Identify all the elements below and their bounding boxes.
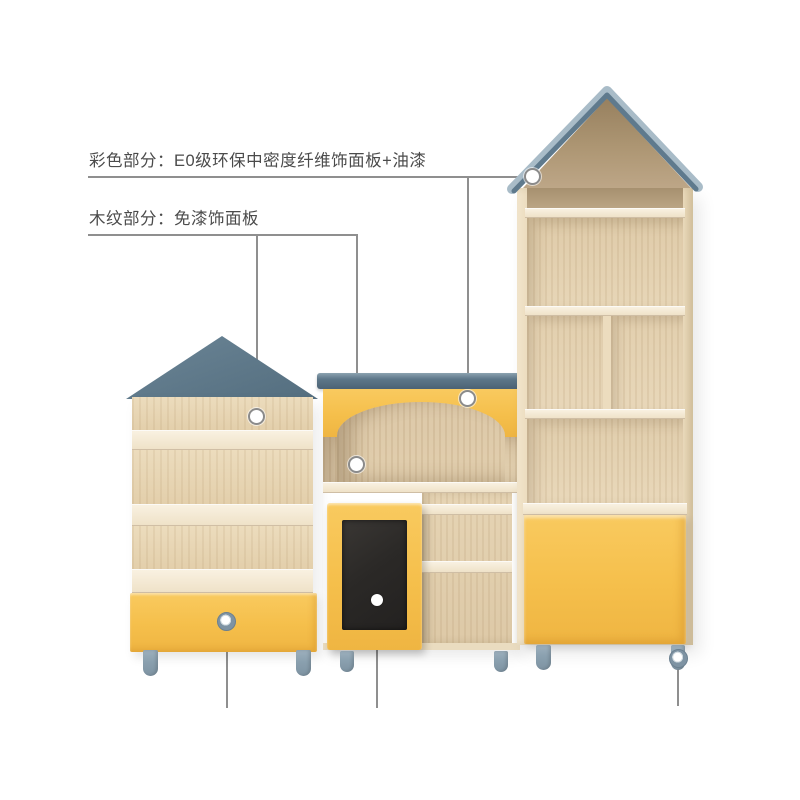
right-unit-compartment-bottom (527, 419, 683, 503)
callout-marker-wood-panel (248, 408, 265, 425)
right-unit-shelf-top (525, 208, 685, 218)
middle-unit-right-shelf-2 (422, 561, 512, 573)
callout-marker-roof-trim (524, 168, 541, 185)
middle-unit-roof-strip (317, 373, 528, 389)
left-unit-leg-left (143, 650, 158, 676)
left-unit-roof (126, 336, 318, 399)
right-unit-leg-left (536, 645, 551, 670)
chalkboard-door (327, 503, 422, 650)
middle-unit-arch-panel (337, 402, 505, 483)
callout-marker-yellow-facade (459, 390, 476, 407)
middle-unit-shelf-board (323, 482, 520, 493)
furniture-material-diagram: 彩色部分：E0级环保中密度纤维饰面板+油漆 木纹部分：免漆饰面板 (0, 0, 800, 800)
drawer-knob-marker (217, 612, 236, 631)
callout-marker-arch-panel (348, 456, 365, 473)
right-leg-marker (669, 649, 688, 668)
middle-unit-leg-right (494, 651, 508, 672)
right-unit-compartment-large (527, 218, 683, 307)
left-unit-body (132, 397, 313, 593)
left-unit-back-panel (132, 397, 313, 430)
callout-line-colored-drop (467, 176, 469, 392)
left-unit-leg-right (296, 650, 311, 676)
left-unit-back-panel-3 (132, 526, 313, 569)
middle-unit-body (323, 389, 520, 650)
label-woodgrain-part: 木纹部分：免漆饰面板 (89, 205, 259, 229)
right-unit-body (517, 188, 693, 645)
left-unit-back-panel-2 (132, 450, 313, 504)
chalkboard-marker (371, 594, 383, 606)
label-colored-part: 彩色部分：E0级环保中密度纤维饰面板+油漆 (89, 147, 426, 171)
right-unit-shelf-middle (525, 306, 685, 316)
left-unit-display-ledge-1 (132, 430, 313, 450)
callout-line-right-leg (677, 667, 679, 706)
middle-unit-leg-left (340, 651, 354, 672)
left-unit-display-ledge-3 (132, 569, 313, 593)
left-unit-display-ledge-2 (132, 504, 313, 526)
right-unit-shelf-lower (525, 409, 685, 419)
chalkboard-panel (342, 520, 407, 630)
middle-unit-right-compartment (422, 493, 512, 643)
right-unit-gable-interior (523, 98, 691, 188)
right-unit-compartment-right (611, 316, 683, 410)
right-unit-yellow-door (524, 515, 686, 644)
middle-unit-right-shelf-1 (422, 504, 512, 515)
right-unit-compartment-left (527, 316, 603, 410)
callout-line-woodgrain-horizontal (88, 234, 358, 236)
right-unit-board (523, 503, 687, 515)
